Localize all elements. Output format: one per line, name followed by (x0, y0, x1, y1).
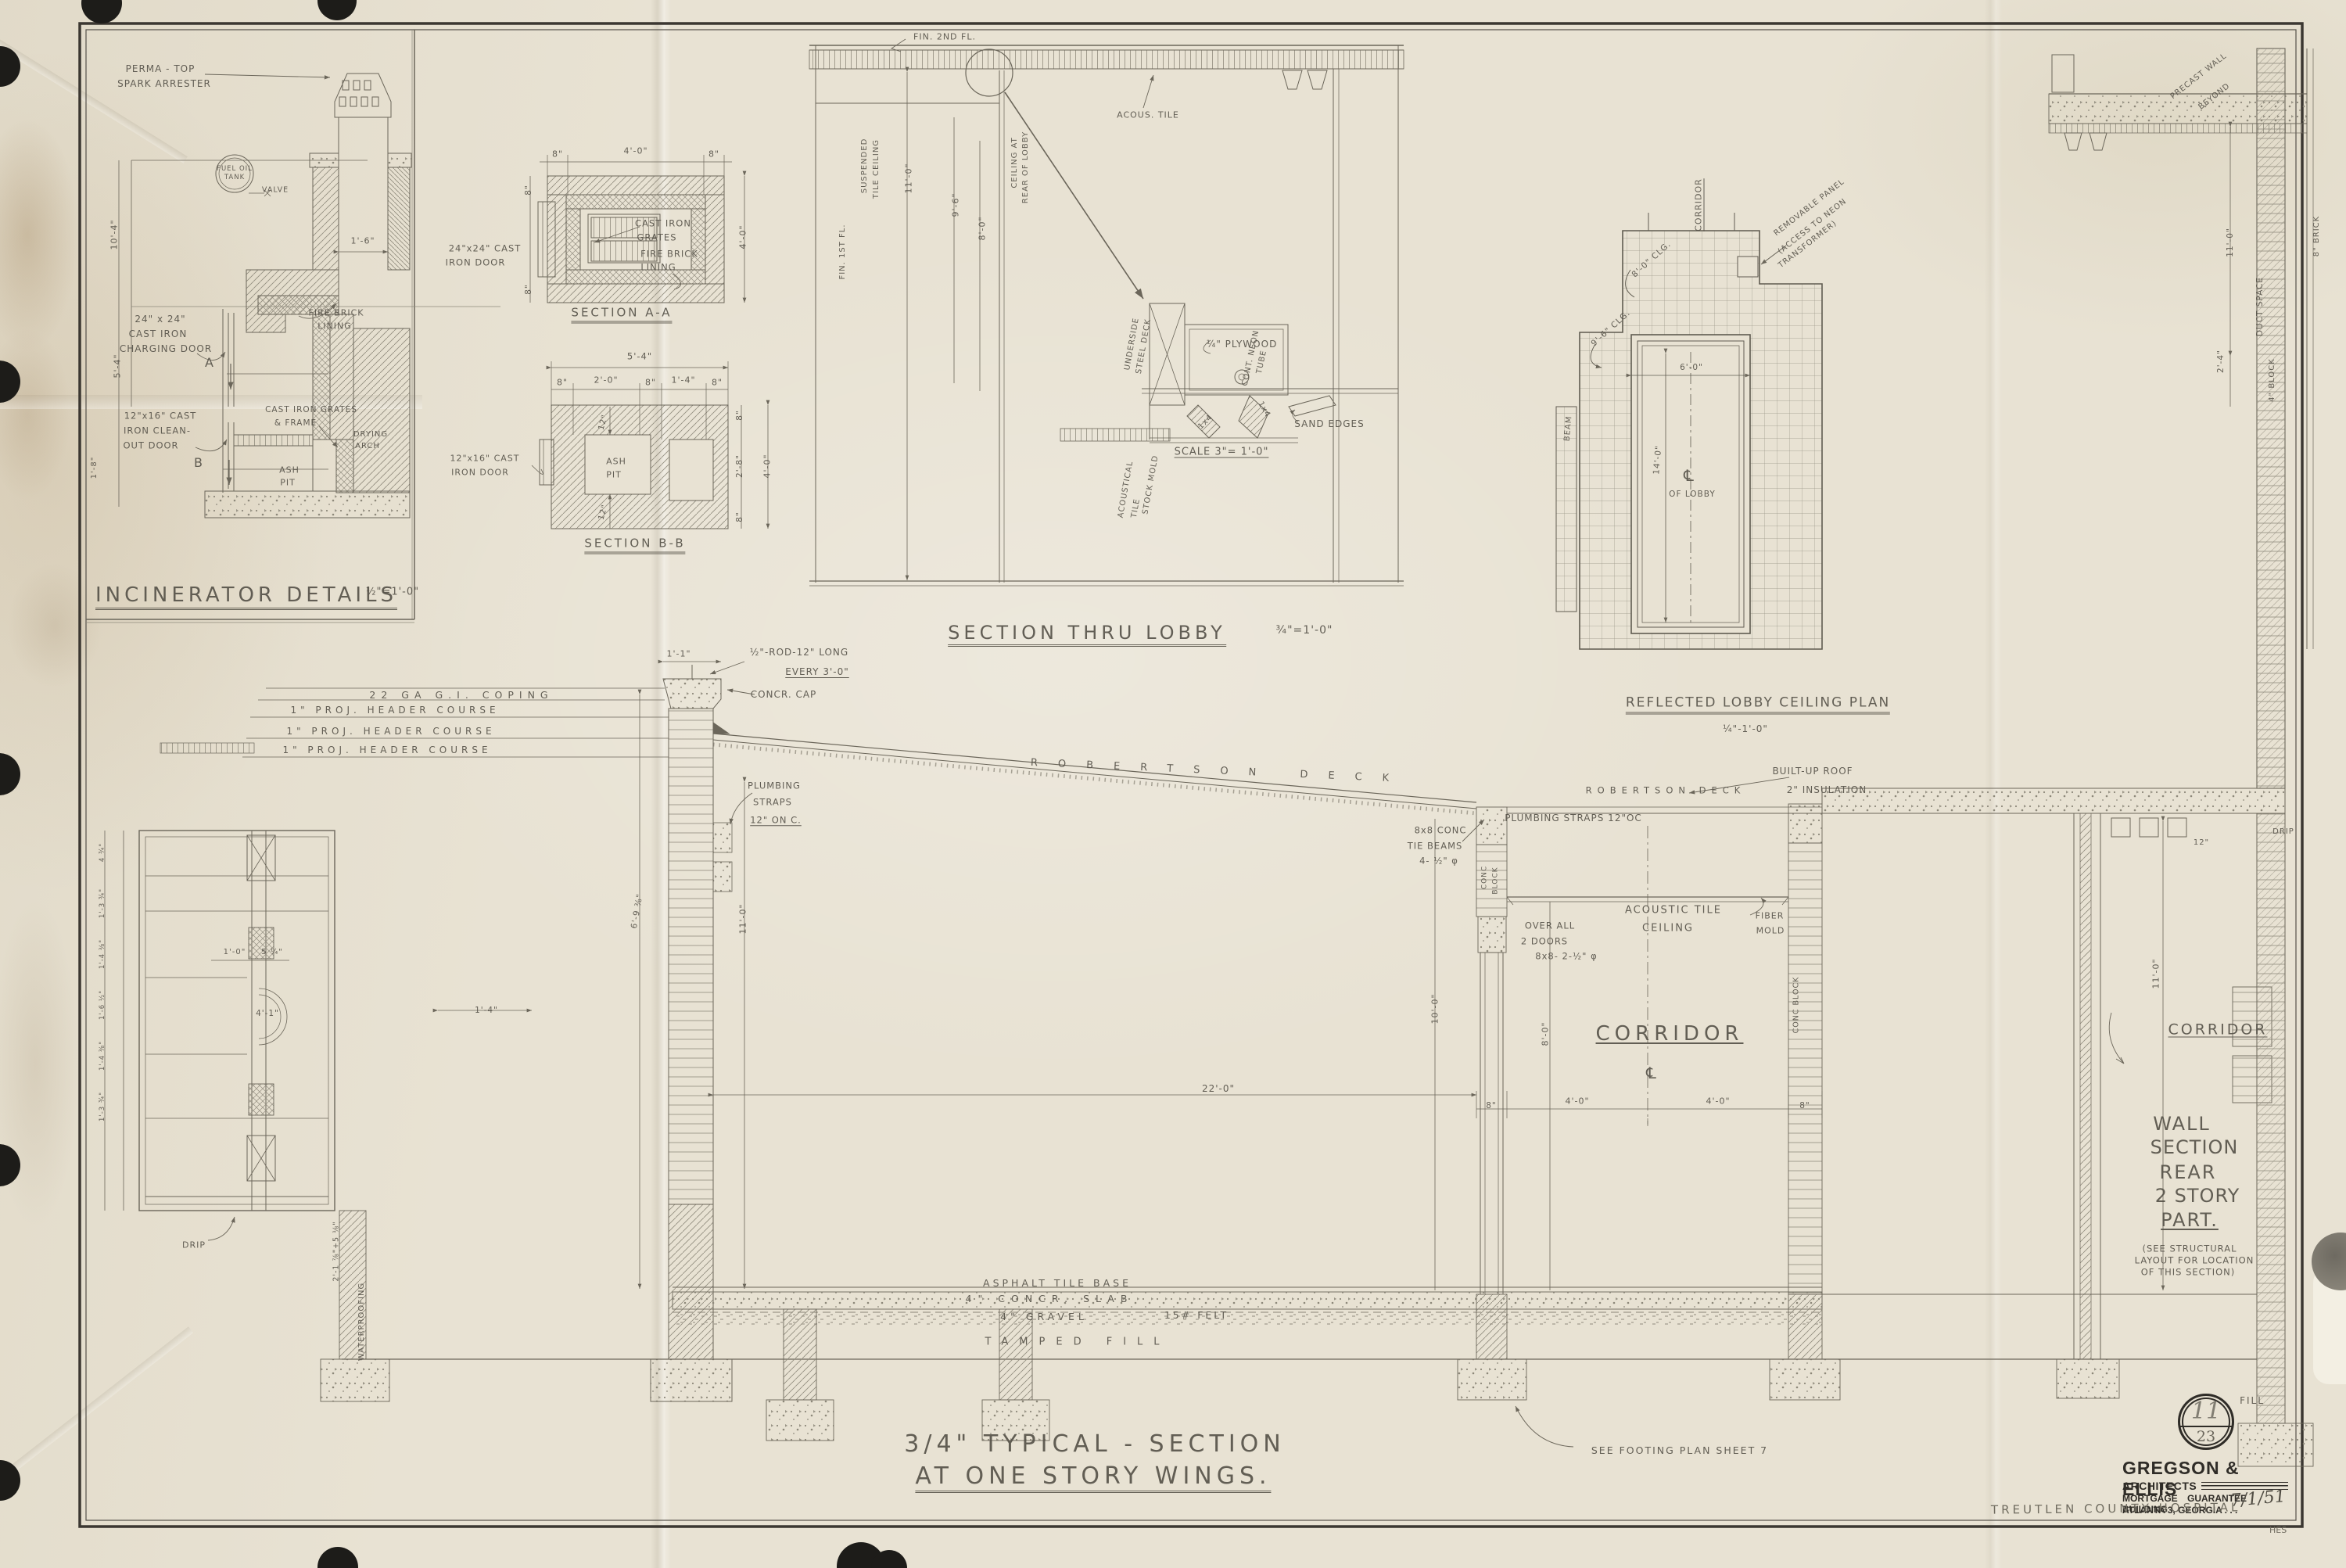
aa-brick-2: LINING (640, 263, 676, 272)
fin-1st-fl: FIN. 1ST FL. (839, 224, 847, 279)
dim-2-4: 2'-4" (2217, 350, 2226, 373)
stack-6: 1'-3 ¾" (99, 1092, 106, 1121)
drip: DRIP (182, 1241, 206, 1250)
aa-dim-6: 4'-0" (739, 224, 748, 249)
aa-grates-1: CAST IRON (635, 219, 691, 228)
main-title-2: AT ONE STORY WINGS. (915, 1465, 1271, 1493)
corr-d4: 8" (1799, 1102, 1810, 1111)
grates-frame-2: & FRAME (274, 419, 317, 428)
valve: VALVE (262, 186, 289, 194)
robertson-deck-2: ROBERTSON DECK (1586, 786, 1746, 795)
fuel-oil-1: FUEL OIL (217, 166, 253, 173)
dim-8-0-lobby: 8'-0" (978, 216, 987, 240)
aa-dim-2: 4'-0" (623, 147, 647, 156)
ashpit-1: ASH (279, 466, 300, 475)
aa-dim-4: 8" (525, 185, 533, 196)
builtup-1: BUILT-UP ROOF (1772, 766, 1853, 776)
acous-tile: ACOUS. TILE (1117, 111, 1179, 120)
drying-1: DRYING (353, 431, 388, 439)
bb-ashpit-2: PIT (606, 471, 622, 479)
ws-2: SECTION (2150, 1138, 2239, 1157)
charging-door-1: 24" x 24" (135, 314, 185, 324)
blueprint-sheet: PERMA - TOPSPARK ARRESTER1'-6"10'-4"5'-4… (0, 0, 2346, 1568)
corridor-main: CORRIDOR (1596, 1024, 1744, 1044)
bb-d2: 2'-0" (594, 376, 618, 385)
bb-r1: 8" (736, 410, 744, 421)
fire-brick-2: LINING (317, 322, 352, 331)
stack-5: 1'-4 ⅜" (99, 1041, 106, 1071)
fin-2nd-fl: FIN. 2ND FL. (913, 33, 976, 41)
fiber-mold-1: FIBER (1756, 912, 1785, 920)
pl-straps-2: STRAPS (753, 798, 792, 807)
win-d2: 5 ¼" (261, 949, 283, 956)
lobby-scale: ¾"=1'-0" (1276, 625, 1333, 636)
dim-2-1: 2'-1 ⅞"+5 ⅛" (332, 1221, 340, 1281)
dim-10-0: 10'-0" (1431, 993, 1440, 1024)
drying-2: ARCH (355, 443, 380, 450)
aa-brick-1: FIRE BRICK (640, 249, 698, 259)
incinerator-detail-drawing (119, 74, 500, 518)
rp-title: REFLECTED LOBBY CEILING PLAN (1626, 697, 1890, 715)
stack-4: 1'-6 ½" (99, 990, 106, 1020)
drip-right: DRIP (2272, 828, 2294, 836)
conc-block-r: CONC BLOCK (1792, 977, 1800, 1034)
reflected-ceiling-plan-drawing (1556, 213, 1822, 649)
dim-9-6-lobby: 9'-6" (952, 192, 960, 217)
brick-8: 8" BRICK (2313, 216, 2321, 257)
bb-d1: 8" (557, 379, 568, 387)
project-name: TREUTLEN COUNTY HOSPITAL (1991, 1500, 2240, 1516)
lobby-title: SECTION THRU LOBBY (948, 623, 1226, 647)
perma-top-2: SPARK ARRESTER (117, 79, 211, 88)
bb-door-1: 12"x16" CAST (450, 454, 519, 463)
ws-6: (SEE STRUCTURAL (2143, 1244, 2237, 1254)
dim-11-0-wall: 11'-0" (2226, 228, 2235, 257)
dim-8-0-corr: 8'-0" (1541, 1021, 1550, 1046)
corridor-cl: ℄ (1646, 1065, 1657, 1081)
dim-1-8: 1'-8" (91, 457, 99, 479)
rp-corridor: CORRIDOR (1695, 178, 1703, 231)
dim-11-0-lobby: 11'-0" (905, 163, 913, 193)
marker-b: B (194, 457, 203, 469)
win-d1: 1'-0" (224, 949, 246, 956)
susp-2: TILE CEILING (873, 139, 881, 199)
aa-dim-5: 8" (525, 284, 533, 295)
bb-dim-top: 5'-4" (627, 352, 652, 361)
stack-2: 1'-3 ¾" (99, 888, 106, 918)
aa-door-2: IRON DOOR (446, 258, 506, 267)
charging-door-2: CAST IRON (129, 329, 188, 339)
pl-straps-3: 12" ON C. (750, 816, 802, 825)
ws-1: WALL (2153, 1114, 2211, 1133)
builtup-2: 2" INSULATION (1787, 785, 1867, 795)
cleanout-2: IRON CLEAN- (124, 426, 191, 436)
coping: 22 GA G.I. COPING (369, 691, 553, 701)
cleanout-3: OUT DOOR (123, 441, 178, 450)
tie-beams-3: 4- ½" φ (1419, 856, 1458, 866)
ws-4: 2 STORY (2155, 1186, 2240, 1205)
ws-8: OF THIS SECTION) (2141, 1268, 2236, 1277)
fuel-oil-2: TANK (224, 174, 245, 181)
duct-space: DUCT SPACE (2256, 277, 2265, 336)
win-d3: 4'-1" (256, 1010, 279, 1018)
bb-r3: 8" (736, 511, 744, 522)
dim-10-4: 10'-4" (110, 219, 119, 249)
rp-of-lobby: OF LOBBY (1669, 490, 1716, 499)
rp-dim-6: 6'-0" (1680, 364, 1703, 372)
corr-d1: 8" (1486, 1102, 1497, 1111)
dim-chimney: 1'-6" (350, 237, 375, 246)
corr-d2: 4'-0" (1565, 1097, 1589, 1106)
bb-d5: 8" (712, 379, 723, 387)
dim-12: 12" (2194, 839, 2209, 847)
bb-door-2: IRON DOOR (451, 468, 509, 477)
overall-1: OVER ALL (1525, 921, 1575, 931)
gravel: 4" GRAVEL (1000, 1312, 1088, 1322)
conc-slab: 4" CONCR. SLAB (966, 1294, 1134, 1304)
ashpit-2: PIT (280, 479, 296, 487)
conc-block-l1: CONC (1482, 866, 1489, 889)
grates-frame-1: CAST IRON GRATES (265, 406, 357, 414)
detail-scale: SCALE 3"= 1'-0" (1175, 447, 1269, 457)
aa-door-1: 24"x24" CAST (449, 244, 522, 253)
sand-edges: SAND EDGES (1294, 419, 1364, 429)
ws-3: REAR (2160, 1163, 2217, 1182)
checker-initials: HES (2269, 1525, 2287, 1535)
win-d4: 1'-4" (475, 1006, 498, 1015)
clg-rear-1: CEILING AT (1011, 137, 1019, 188)
overall-3: 8x8- 2-½" φ (1535, 952, 1597, 961)
incinerator-scale: ½"=1'-0" (366, 587, 419, 597)
sheet-number-badge: 11 23 (2178, 1394, 2234, 1450)
dim-1-1: 1'-1" (666, 650, 691, 658)
sheet-count: 23 (2180, 1427, 2232, 1446)
plywood: ¼" PLYWOOD (1207, 339, 1278, 349)
see-footing: SEE FOOTING PLAN SHEET 7 (1591, 1446, 1768, 1456)
ws-5: PART. (2161, 1211, 2219, 1229)
charging-door-3: CHARGING DOOR (120, 344, 212, 353)
header-course-1: 1" PROJ. HEADER COURSE (290, 705, 499, 715)
stack-3: 1'-4 ⅜" (99, 939, 106, 969)
rod-2: EVERY 3'-0" (785, 667, 849, 676)
aa-title: SECTION A-A (571, 307, 672, 324)
aa-dim-3: 8" (708, 150, 719, 159)
acoustic-clg-2: CEILING (1642, 924, 1694, 934)
cleanout-1: 12"x16" CAST (124, 411, 197, 421)
header-course-3: 1" PROJ. HEADER COURSE (282, 745, 491, 755)
aa-grates-2: GRATES (637, 233, 676, 242)
dim-11-0-room: 11'-0" (739, 903, 748, 934)
ws-7: LAYOUT FOR LOCATION (2135, 1256, 2255, 1265)
stack-1: 4 ¾" (99, 843, 106, 862)
tie-beams-1: 8x8 CONC (1415, 826, 1467, 835)
pl-straps-12oc: PLUMBING STRAPS 12"OC (1505, 813, 1642, 823)
aa-dim-1: 8" (552, 150, 563, 159)
waterproofing: WATERPROOFING (358, 1283, 366, 1361)
tamped-fill: TAMPED FILL (985, 1337, 1170, 1347)
bb-title: SECTION B-B (584, 538, 685, 554)
bb-d3: 8" (645, 379, 656, 387)
acoustic-clg-1: ACOUSTIC TILE (1625, 906, 1722, 916)
corridor-right: CORRIDOR (2168, 1023, 2267, 1038)
wall-section-2story-upper (2049, 48, 2313, 788)
asphalt-base: ASPHALT TILE BASE (983, 1279, 1132, 1289)
bb-r4: 4'-0" (763, 454, 772, 478)
main-title-1: 3/4" TYPICAL - SECTION (904, 1433, 1285, 1456)
pl-straps-1: PLUMBING (748, 781, 801, 791)
clg-rear-2: REAR OF LOBBY (1022, 131, 1030, 203)
block-4: 4" BLOCK (2269, 358, 2276, 402)
tie-beams-2: TIE BEAMS (1408, 841, 1463, 851)
corr-d3: 4'-0" (1706, 1097, 1730, 1106)
perma-top-1: PERMA - TOP (126, 64, 195, 74)
marker-a: A (205, 357, 214, 369)
header-course-2: 1" PROJ. HEADER COURSE (286, 727, 495, 736)
concr-cap: CONCR. CAP (751, 690, 817, 699)
dim-5-4: 5'-4" (113, 353, 122, 378)
lobby-section-drawing (809, 39, 1404, 586)
susp-1: SUSPENDED (861, 138, 869, 194)
dim-22-0: 22'-0" (1202, 1084, 1235, 1093)
rp-scale: ¼"-1'-0" (1723, 724, 1768, 734)
conc-block-l2: BLOCK (1493, 867, 1500, 894)
bb-d4: 1'-4" (671, 376, 695, 385)
felt: 15# FELT (1164, 1311, 1229, 1321)
firm-role: ARCHITECTS (2122, 1480, 2197, 1492)
bb-ashpit-1: ASH (606, 457, 626, 466)
typical-section-drawing (105, 662, 2313, 1466)
bb-r2: 2'-8" (736, 454, 744, 478)
incinerator-title: INCINERATOR DETAILS (95, 585, 397, 610)
rod-1: ½"-ROD-12" LONG (750, 648, 848, 657)
sheet-number: 11 (2180, 1396, 2232, 1427)
fiber-mold-2: MOLD (1756, 927, 1785, 935)
rp-cl: ℄ (1684, 468, 1695, 483)
overall-2: 2 DOORS (1521, 937, 1568, 946)
fire-brick-1: FIRE BRICK (309, 309, 364, 318)
dim-11-0-right: 11'-0" (2152, 958, 2161, 989)
section-aa-drawing (530, 155, 744, 303)
